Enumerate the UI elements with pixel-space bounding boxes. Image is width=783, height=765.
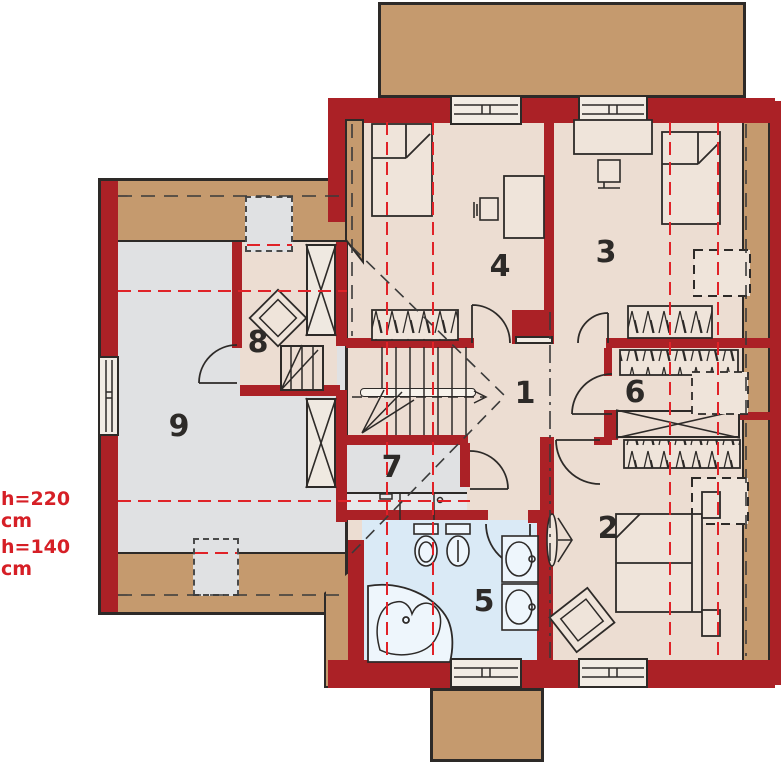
south-wall <box>328 660 775 688</box>
room-label-7: 7 <box>374 451 410 484</box>
south-roof-notch <box>193 538 239 596</box>
window-icon <box>450 95 522 125</box>
wall-stairs-west-a <box>336 242 347 346</box>
window-icon <box>450 658 522 688</box>
wall-under-room4 <box>346 338 474 348</box>
wall-bath-north-a <box>346 510 488 520</box>
north-roof-notch <box>245 196 293 252</box>
floor-plan: 1 2 3 4 5 6 7 8 9 h=220 cm h=140 cm <box>0 0 783 765</box>
stair-winder-block <box>280 345 324 391</box>
left-wing-north-roof-band <box>118 181 347 242</box>
wall-room7-east <box>460 443 470 487</box>
wall-room6-room2-east <box>738 412 775 420</box>
stair-handrail <box>360 388 476 397</box>
room-label-4: 4 <box>482 250 518 283</box>
room-label-8: 8 <box>240 326 276 359</box>
top-dormer-block <box>378 2 746 98</box>
annotation-h140: h=140 cm <box>1 536 91 580</box>
west-wall-upper <box>328 98 346 222</box>
wall-room4-room3 <box>544 120 554 316</box>
wall-room2-north-stub <box>594 437 612 445</box>
hall-threshold <box>515 336 553 344</box>
chimney-icon <box>306 244 336 336</box>
window-icon <box>578 95 648 125</box>
bathroom-floor <box>362 520 540 664</box>
room-label-1: 1 <box>507 377 543 410</box>
right-exterior-wall <box>768 101 781 685</box>
right-roof-slope-band <box>742 122 768 660</box>
bottom-dormer-block <box>430 688 544 762</box>
chimney-icon <box>306 398 336 488</box>
wall-under-room3 <box>606 338 775 348</box>
room-label-2: 2 <box>590 512 626 545</box>
wall-hall-room6-a <box>604 348 612 376</box>
wall-bath-west <box>348 540 364 665</box>
wall-bath-room2 <box>537 520 553 662</box>
room-label-9: 9 <box>161 410 197 443</box>
wall-stairs-room7 <box>346 435 468 445</box>
room-label-3: 3 <box>588 236 624 269</box>
window-icon <box>578 658 648 688</box>
room-label-5: 5 <box>466 585 502 618</box>
shelf-unit-room6 <box>616 410 740 438</box>
annotation-h220: h=220 cm <box>1 488 91 532</box>
wall-stairs-west-b <box>336 390 347 522</box>
room-label-6: 6 <box>617 376 653 409</box>
window-icon <box>98 356 119 436</box>
